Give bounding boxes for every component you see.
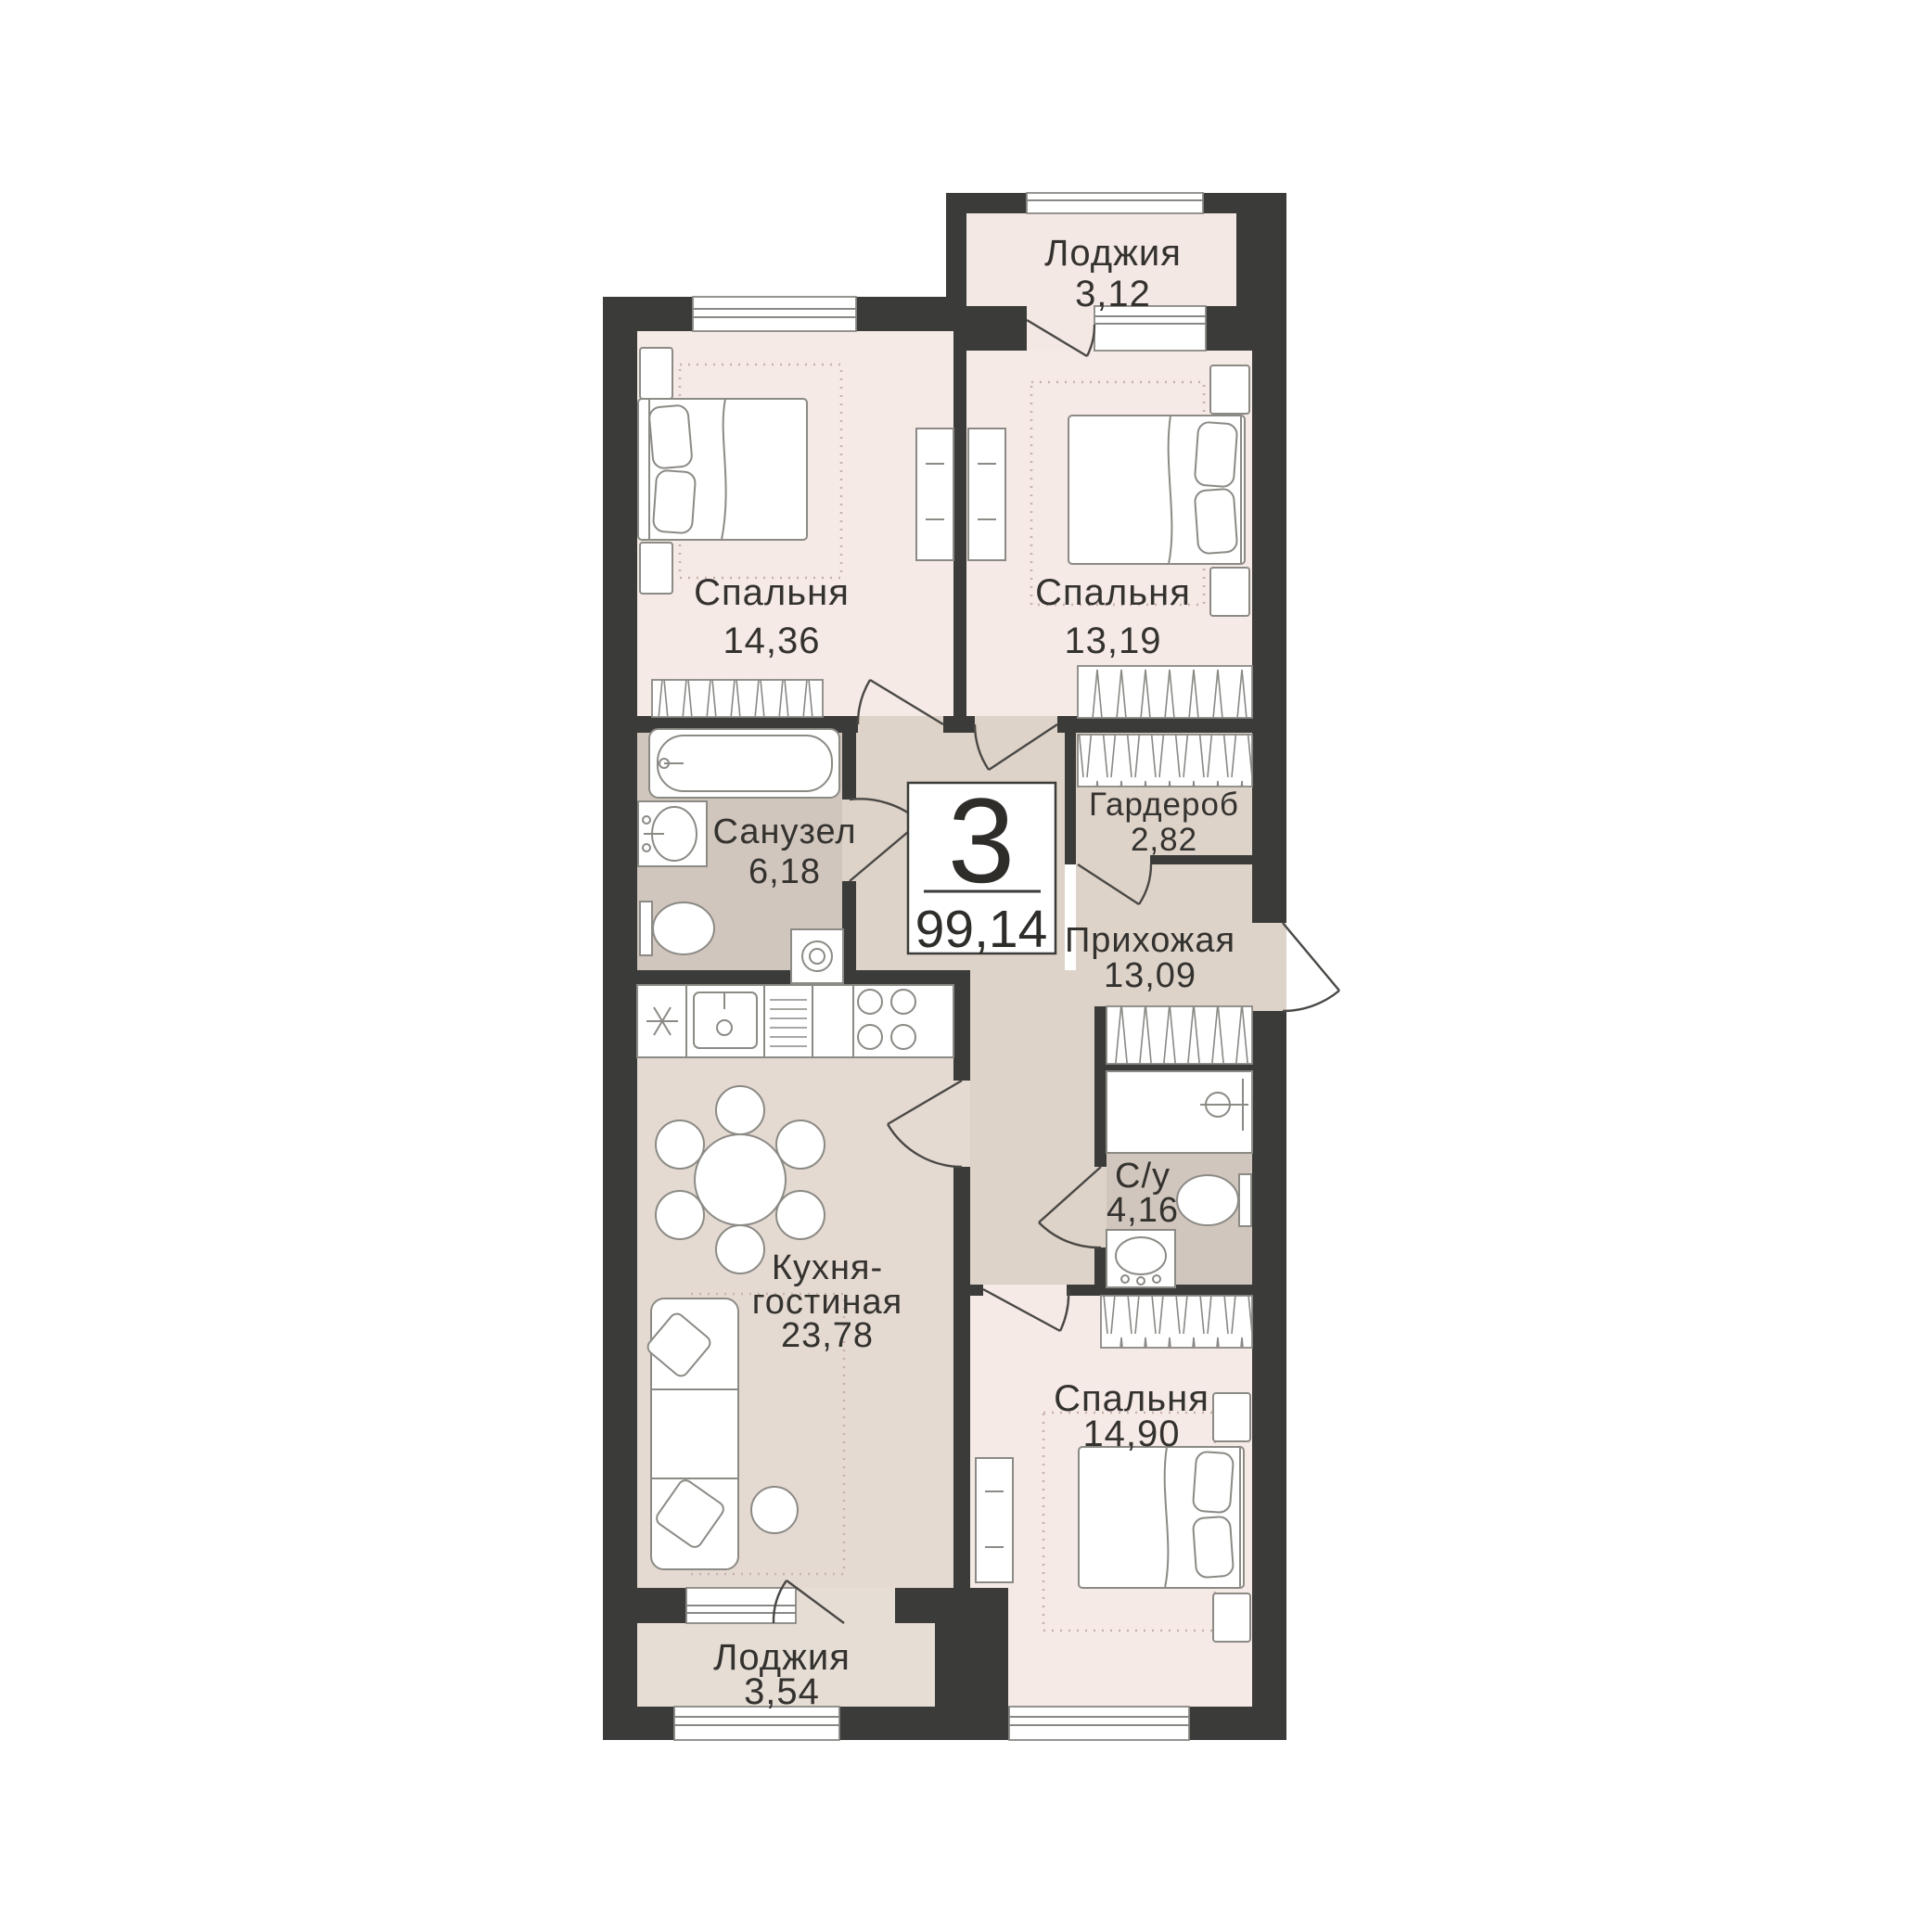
bedroom1-area: 14,36 — [723, 621, 820, 661]
closet-bedroom1 — [652, 680, 823, 717]
nightstand — [640, 348, 672, 399]
kitchen-living-name-line1: Кухня- — [772, 1248, 883, 1287]
wall-wardrobe-left — [1065, 716, 1076, 864]
wall-bedroom2-top-a — [966, 306, 1027, 351]
pillow — [1193, 1452, 1234, 1514]
dresser — [968, 429, 1005, 560]
wall-kitchen-bottom-a — [603, 1588, 686, 1623]
wall-bedroom3-top-a — [970, 1285, 983, 1296]
pillow — [1193, 1516, 1234, 1579]
chair — [716, 1225, 764, 1273]
shower-area — [1107, 1071, 1252, 1153]
bathroom-area: 6,18 — [748, 852, 821, 891]
bedroom-1-door-gap — [858, 716, 943, 733]
kitchen-door-gap — [953, 1081, 970, 1167]
wall-wc-left-a — [1094, 1006, 1107, 1167]
toilet-bowl — [1177, 1175, 1238, 1225]
bedroom3-area: 14,90 — [1082, 1414, 1180, 1454]
window-bedroom1 — [693, 297, 856, 331]
pillow — [1195, 489, 1238, 555]
wall-bottom-c — [1189, 1707, 1286, 1740]
loggia-bottom-door-gap — [796, 1588, 895, 1621]
closet-bedroom3 — [1101, 1296, 1252, 1348]
closet-wardrobe-room — [1078, 735, 1252, 787]
dining-table — [695, 1134, 786, 1225]
bedroom2-name: Спальня — [1035, 572, 1191, 613]
nightstand — [1210, 365, 1249, 414]
wc-area: 4,16 — [1107, 1191, 1179, 1230]
nightstand — [1210, 568, 1249, 616]
wc-name: С/у — [1115, 1157, 1171, 1196]
badge-rooms-count: 3 — [948, 773, 1015, 908]
floor-plan: Лоджия 3,12 Спальня 14,36 Спальня 13,19 … — [0, 0, 1932, 1932]
loggia-bottom-area: 3,54 — [744, 1671, 820, 1712]
wall-right-upper — [1252, 297, 1286, 923]
bathroom-name: Санузел — [712, 812, 856, 851]
wall-kitchen-right-a — [953, 985, 970, 1081]
chair — [716, 1086, 764, 1134]
pillow — [1195, 422, 1238, 488]
wall-left-exterior — [603, 297, 637, 1740]
chair — [656, 1191, 704, 1239]
door-entrance — [1283, 923, 1339, 1011]
apartment-badge: 3 99,14 — [908, 773, 1056, 959]
window-bedroom3 — [1009, 1707, 1189, 1740]
loggia-top-name: Лоджия — [1044, 233, 1182, 274]
wall-right-lower — [1252, 1011, 1286, 1740]
chair — [776, 1191, 825, 1239]
dresser — [976, 1458, 1013, 1582]
hallway-floor-corridor — [970, 970, 1094, 1296]
bedroom-3-door-gap — [983, 1285, 1067, 1296]
wall-bedrooms-bottom-b — [943, 716, 975, 733]
loggia-top-area: 3,12 — [1075, 274, 1151, 314]
hallway-area: 13,09 — [1104, 956, 1196, 995]
chair — [656, 1120, 704, 1169]
entrance-door-gap — [1252, 923, 1286, 1011]
pillow — [653, 470, 697, 534]
wall-top-left — [603, 297, 693, 331]
wall-bathroom-right-b — [842, 881, 856, 970]
wall-bedroom2-top-b — [1206, 306, 1252, 351]
nightstand — [1213, 1593, 1250, 1642]
toilet-tank — [1239, 1174, 1251, 1226]
wardrobe-area: 2,82 — [1131, 822, 1197, 858]
wall-bathroom-right-a — [842, 733, 856, 800]
window-loggia-top — [1027, 193, 1203, 213]
hallway-name: Прихожая — [1065, 921, 1235, 960]
nightstand — [1213, 1393, 1250, 1441]
wall-bathroom-bottom — [603, 970, 970, 985]
closet-hallway — [1107, 1006, 1252, 1064]
closet-bedroom2 — [1078, 666, 1252, 718]
bedroom2-area: 13,19 — [1064, 621, 1161, 661]
toilet-tank — [640, 902, 652, 955]
wall-kitchen-right-b — [953, 1167, 970, 1588]
sink — [1116, 1237, 1166, 1274]
washing-machine — [791, 929, 843, 983]
bedroom1-name: Спальня — [694, 572, 850, 613]
dresser — [916, 429, 953, 560]
wc-door-gap — [1094, 1167, 1107, 1247]
wall-loggia-top-a — [946, 193, 1027, 213]
badge-total-area: 99,14 — [915, 900, 1048, 959]
chair — [776, 1120, 825, 1169]
wall-kitchen-bottom-b — [895, 1588, 935, 1623]
toilet-bowl — [653, 902, 714, 954]
pillow — [648, 404, 693, 468]
pouf — [751, 1487, 798, 1533]
wardrobe-name: Гардероб — [1089, 787, 1239, 823]
wall-bottom-a — [603, 1707, 674, 1740]
wall-wc-top — [1107, 1064, 1252, 1071]
wall-bottom-b — [839, 1707, 1009, 1740]
bedroom-2-door-gap — [975, 716, 1057, 733]
nightstand — [640, 543, 672, 594]
wall-mid-bedrooms — [953, 326, 966, 716]
kitchen-living-area: 23,78 — [781, 1316, 874, 1355]
